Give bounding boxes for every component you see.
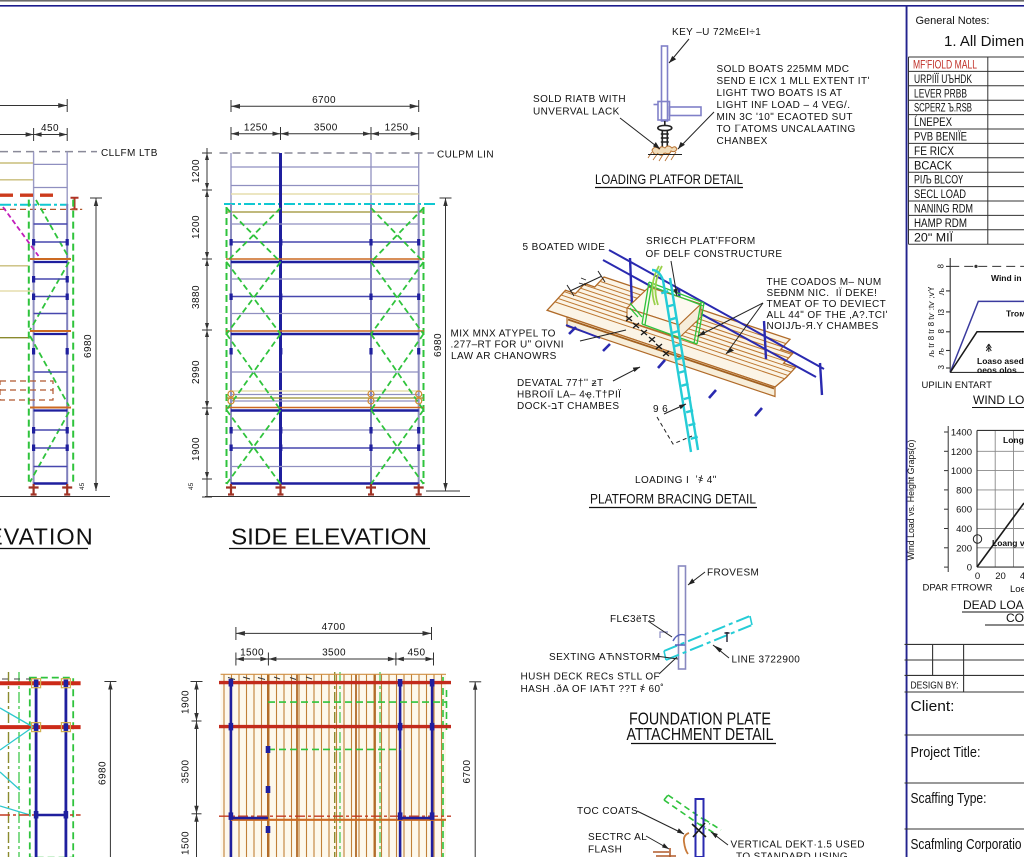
svg-text:PLATFORM BRACING DETAIL: PLATFORM BRACING DETAIL — [590, 491, 756, 507]
svg-text:5 BOATED WIDE: 5 BOATED WIDE — [523, 242, 606, 253]
svg-text:TOC COATS: TOC COATS — [577, 806, 638, 817]
svg-text:400: 400 — [956, 524, 972, 535]
svg-text:URPІЇЇ UЪHDK: URPІЇЇ UЪHDK — [914, 74, 972, 86]
svg-text:FLЄ3ёTS: FLЄ3ёTS — [610, 614, 656, 625]
svg-text:NANING RDM: NANING RDM — [914, 204, 973, 216]
svg-text:SOLD BOATS 225MM MDC: SOLD BOATS 225MM MDC — [717, 64, 850, 75]
svg-text:HUSH DECK RECѕ STLL OF: HUSH DECK RECѕ STLL OF — [521, 672, 661, 683]
svg-text:Longo: Longo — [1003, 435, 1024, 445]
svg-text:Client:: Client: — [911, 699, 955, 715]
svg-text:HASH .ðA OF ІАЋT ??T ҂ 60˚: HASH .ðA OF ІАЋT ??T ҂ 60˚ — [521, 683, 665, 695]
svg-text:1900: 1900 — [181, 690, 192, 714]
svg-text:3500: 3500 — [322, 648, 346, 659]
svg-text:EVATION: EVATION — [0, 524, 94, 550]
svg-text:1400: 1400 — [951, 428, 972, 439]
svg-text:MIX MNX ATYPEL TO: MIX MNX ATYPEL TO — [451, 329, 556, 340]
svg-text:0: 0 — [975, 571, 980, 582]
svg-text:SEXTING АЋNSTORM: SEXTING АЋNSTORM — [549, 652, 660, 663]
svg-text:Ӏ3: Ӏ3 — [937, 308, 946, 315]
svg-text:Project Title:: Project Title: — [911, 745, 981, 761]
svg-text:VERTICAL DEKT·1.5 USED: VERTICAL DEKT·1.5 USED — [731, 840, 865, 851]
svg-text:3880: 3880 — [191, 285, 202, 309]
svg-text:800: 800 — [956, 485, 972, 496]
svg-text:Loе: Loе — [1010, 584, 1024, 595]
svg-text:Wind in LС: Wind in LС — [991, 273, 1024, 283]
svg-text:DEVATAL 77†ʹʹ ƶT: DEVATAL 77†ʹʹ ƶT — [517, 378, 604, 389]
svg-text:2990: 2990 — [191, 360, 202, 384]
svg-text:PІЉ BLCOҮ: PІЉ BLCOҮ — [914, 175, 963, 187]
svg-text:1900: 1900 — [191, 437, 202, 461]
svg-text:1250: 1250 — [385, 123, 409, 134]
svg-text:6980: 6980 — [98, 761, 109, 785]
svg-text:45: 45 — [79, 482, 86, 490]
svg-text:Scafmling Corporatio: Scafmling Corporatio — [911, 837, 1022, 853]
svg-text:DESIGN BY:: DESIGN BY: — [911, 681, 959, 692]
svg-text:LOADING I ʼ҂ 4ʺ: LOADING I ʼ҂ 4ʺ — [635, 474, 717, 486]
svg-text:45: 45 — [188, 482, 195, 490]
svg-text:1000: 1000 — [951, 466, 972, 477]
svg-text:THE COADOS M– NUM: THE COADOS M– NUM — [767, 277, 882, 288]
svg-text:UNVERVAL LACK: UNVERVAL LACK — [533, 107, 620, 118]
svg-text:20ʺ MІЇ: 20ʺ MІЇ — [914, 232, 954, 244]
svg-text:0: 0 — [967, 563, 972, 574]
svg-text:SCPERZ Ъ.RSB: SCPERZ Ъ.RSB — [914, 103, 972, 115]
svg-text:SRІЄCH PLATʹFFORM: SRІЄCH PLATʹFFORM — [646, 236, 756, 247]
svg-text:SEND E IϹX 1 MLL EXTENT ITʹ: SEND E IϹX 1 MLL EXTENT ITʹ — [717, 76, 870, 87]
svg-text:SECTRC AL: SECTRC AL — [588, 832, 647, 843]
svg-text:DPAR FTROWR: DPAR FTROWR — [923, 583, 993, 594]
svg-text:Scaffing Type:: Scaffing Type: — [911, 791, 987, 807]
svg-text:ALL 44ʺ OF THE ‚A?.TCІʹ: ALL 44ʺ OF THE ‚A?.TCІʹ — [767, 310, 888, 321]
svg-text:CLLFM LTB: CLLFM LTB — [101, 148, 158, 159]
svg-text:Troмu: Troмu — [1006, 309, 1024, 319]
svg-text:BCACK: BCACK — [914, 160, 952, 172]
svg-text:LIGHT TWO BOATS IS AT: LIGHT TWO BOATS IS AT — [717, 88, 843, 99]
svg-text:HAMP RDM: HAMP RDM — [914, 218, 967, 230]
svg-text:6700: 6700 — [462, 760, 473, 784]
svg-text:COІ: COІ — [1006, 611, 1024, 625]
svg-text:SECL LOAD: SECL LOAD — [914, 189, 966, 201]
svg-text:UPІLIN ENTART: UPІLIN ENTART — [922, 380, 993, 391]
svg-text:450: 450 — [41, 123, 59, 134]
svg-text:TO STANDARD USING: TO STANDARD USING — [736, 852, 848, 857]
svg-text:600: 600 — [956, 505, 972, 516]
svg-text:CULPM LIN: CULPM LIN — [437, 150, 494, 161]
svg-text:љ tг 8 tг 8 tѵ :tѵ ;ѵҮ: љ tг 8 tг 8 tѵ :tѵ ;ѵҮ — [927, 286, 936, 357]
svg-text:3: 3 — [937, 364, 946, 369]
svg-text:4: 4 — [1020, 571, 1024, 582]
svg-text:FLASH: FLASH — [588, 845, 622, 856]
svg-text:450: 450 — [408, 648, 426, 659]
svg-text:CHANBEX: CHANBEX — [717, 136, 768, 147]
svg-text:1500: 1500 — [181, 831, 192, 855]
svg-text:SIDE ELEVATION: SIDE ELEVATION — [231, 524, 427, 550]
svg-text:3500: 3500 — [314, 123, 338, 134]
svg-text:TO ℾATOMS UNCALAATING: TO ℾATOMS UNCALAATING — [717, 124, 856, 135]
svg-text:љ: љ — [937, 288, 946, 295]
svg-text:20: 20 — [995, 571, 1006, 582]
svg-text:8: 8 — [937, 328, 946, 333]
svg-text:1200: 1200 — [191, 215, 202, 239]
svg-text:SOLD RIATB WITH: SOLD RIATB WITH — [533, 94, 626, 105]
svg-text:3500: 3500 — [181, 760, 192, 784]
svg-text:200: 200 — [956, 543, 972, 554]
svg-text:LEVER PRBB: LEVER PRBB — [914, 88, 967, 100]
svg-text:4700: 4700 — [322, 622, 346, 633]
svg-text:1250: 1250 — [244, 123, 268, 134]
svg-text:6980: 6980 — [83, 334, 94, 358]
svg-text:KEY –U 72MєEI÷1: KEY –U 72MєEI÷1 — [672, 27, 761, 38]
svg-text:8: 8 — [937, 263, 946, 268]
svg-text:NOIЈЉ-Я.Y CHAMBES: NOIЈЉ-Я.Y CHAMBES — [767, 321, 879, 332]
svg-text:1. All Dimens: 1. All Dimens — [944, 33, 1024, 50]
svg-text:FROVESM: FROVESM — [707, 568, 759, 579]
svg-text:MFʹFІOLD MALL: MFʹFІOLD MALL — [913, 60, 977, 72]
svg-text:1200: 1200 — [951, 447, 972, 458]
svg-text:OF DELF CONSTRUCTURE: OF DELF CONSTRUCTURE — [646, 249, 783, 260]
svg-text:HBROІЇ LA– 4ҿ.T†PІЇ: HBROІЇ LA– 4ҿ.T†PІЇ — [517, 389, 621, 401]
svg-text:MIN 3C ʹ10ʺ ECAOTED SUT: MIN 3C ʹ10ʺ ECAOTED SUT — [717, 112, 853, 123]
svg-text:LOADING PLATFOR DETAIL: LOADING PLATFOR DETAIL — [595, 171, 743, 187]
svg-text:LINE 3722900: LINE 3722900 — [732, 655, 801, 666]
svg-text:PVB BENІЇE: PVB BENІЇE — [914, 132, 967, 144]
svg-text:oeos olos: oeos olos — [977, 365, 1017, 375]
svg-text:.277–RT FOR Uʺ OIVNI: .277–RT FOR Uʺ OIVNI — [451, 340, 564, 351]
svg-text:Loang vе: Loang vе — [992, 538, 1024, 548]
svg-text:LAW AR CHANOWRS: LAW AR CHANOWRS — [451, 351, 557, 362]
svg-text:DEAD LOAD: DEAD LOAD — [963, 598, 1024, 612]
svg-text:LIGHT INF LOAD – 4 VEG/.: LIGHT INF LOAD – 4 VEG/. — [717, 100, 851, 111]
svg-text:FE RICX: FE RICX — [914, 146, 954, 158]
svg-text:6980: 6980 — [433, 333, 444, 357]
svg-text:WIND LOAD: WIND LOAD — [973, 393, 1024, 407]
svg-text:ATTACHMENT DETAIL: ATTACHMENT DETAIL — [627, 724, 774, 744]
svg-text:SEĐNM NIC. ІЇ DEKE!: SEĐNM NIC. ІЇ DEKE! — [767, 287, 878, 299]
svg-text:6700: 6700 — [312, 95, 336, 106]
svg-text:TMEAT OF TO DEVIECT: TMEAT OF TO DEVIECT — [767, 299, 887, 310]
svg-text:љ: љ — [937, 348, 946, 355]
svg-text:1500: 1500 — [240, 648, 264, 659]
svg-text:1200: 1200 — [191, 159, 202, 183]
svg-text:ĹNEPEX: ĹNEPEX — [914, 116, 952, 129]
svg-text:Wind Load vѕ. Height Grapѕ(о): Wind Load vѕ. Height Grapѕ(о) — [906, 440, 916, 561]
svg-text:DOCK-בT CHAMBES: DOCK-בT CHAMBES — [517, 401, 619, 412]
svg-text:General Notes:: General Notes: — [916, 15, 990, 27]
